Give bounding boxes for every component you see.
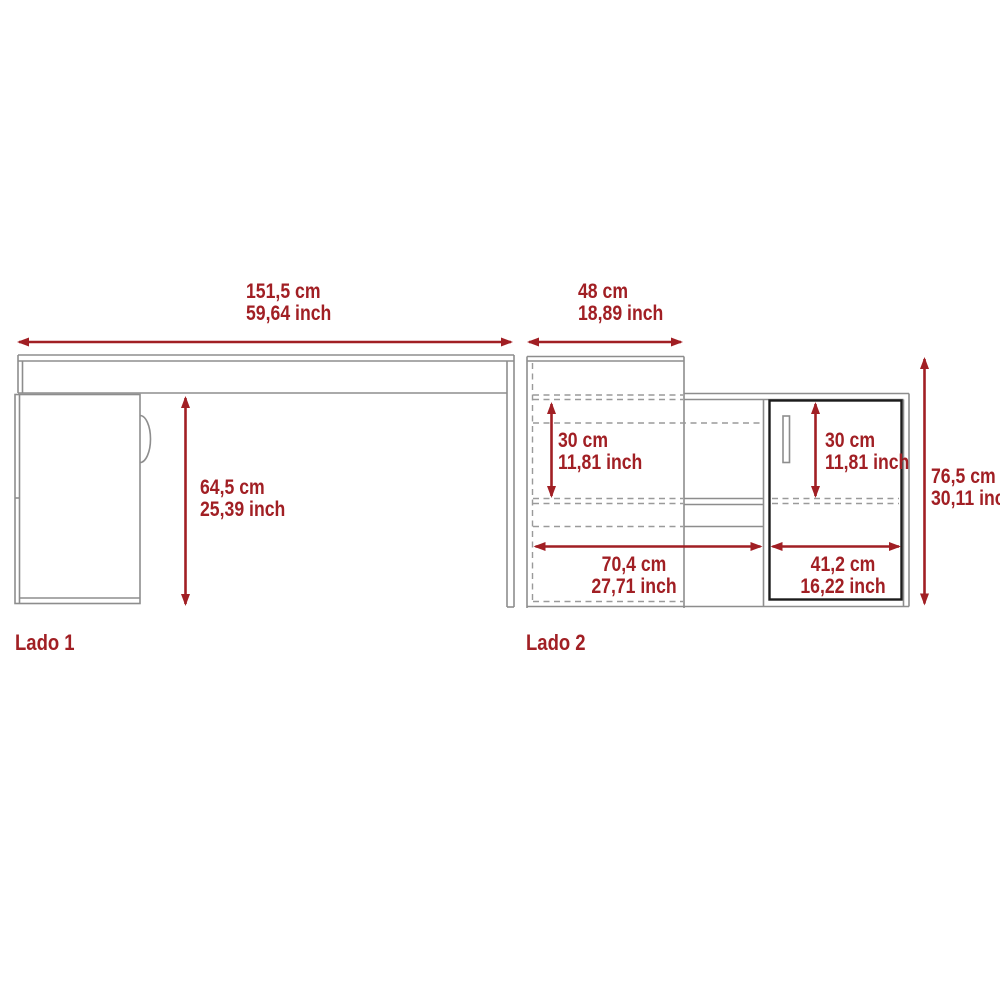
- side2-right-shelf-dimension: 30 cm 11,81 inch: [825, 430, 909, 474]
- side1-height-cm: 64,5 cm: [200, 477, 285, 499]
- side2-right-shelf-inch: 11,81 inch: [825, 452, 909, 474]
- side2-left-width-cm: 70,4 cm: [550, 554, 718, 576]
- side2-left-shelf-inch: 11,81 inch: [558, 452, 642, 474]
- furniture-dimension-diagram: 151,5 cm 59,64 inch 48 cm 18,89 inch 64,…: [0, 0, 1000, 1000]
- side2-left-width-dimension: 70,4 cm 27,71 inch: [550, 554, 718, 598]
- side2-right-width-inch: 16,22 inch: [759, 576, 927, 598]
- door-handle: [783, 416, 790, 463]
- side2-depth-inch: 18,89 inch: [578, 303, 663, 325]
- side1-width-inch: 59,64 inch: [246, 303, 331, 325]
- door-handle-arc: [140, 416, 151, 463]
- side1-height-inch: 25,39 inch: [200, 499, 285, 521]
- side2-left-shelf-cm: 30 cm: [558, 430, 642, 452]
- side1-width-dimension: 151,5 cm 59,64 inch: [246, 281, 331, 325]
- side2-left-width-inch: 27,71 inch: [550, 576, 718, 598]
- side1-width-cm: 151,5 cm: [246, 281, 331, 303]
- side2-label: Lado 2: [526, 631, 586, 654]
- side2-depth-dimension: 48 cm 18,89 inch: [578, 281, 663, 325]
- side2-height-dimension: 76,5 cm 30,11 inch: [931, 466, 1000, 510]
- diagram-linework: [0, 0, 1000, 1000]
- side2-left-shelf-dimension: 30 cm 11,81 inch: [558, 430, 642, 474]
- side2-right-width-cm: 41,2 cm: [759, 554, 927, 576]
- side2-depth-cm: 48 cm: [578, 281, 663, 303]
- side2-right-width-dimension: 41,2 cm 16,22 inch: [759, 554, 927, 598]
- side2-right-shelf-cm: 30 cm: [825, 430, 909, 452]
- side1-label: Lado 1: [15, 631, 75, 654]
- side2-height-inch: 30,11 inch: [931, 488, 1000, 510]
- side1-height-dimension: 64,5 cm 25,39 inch: [200, 477, 285, 521]
- side2-height-cm: 76,5 cm: [931, 466, 1000, 488]
